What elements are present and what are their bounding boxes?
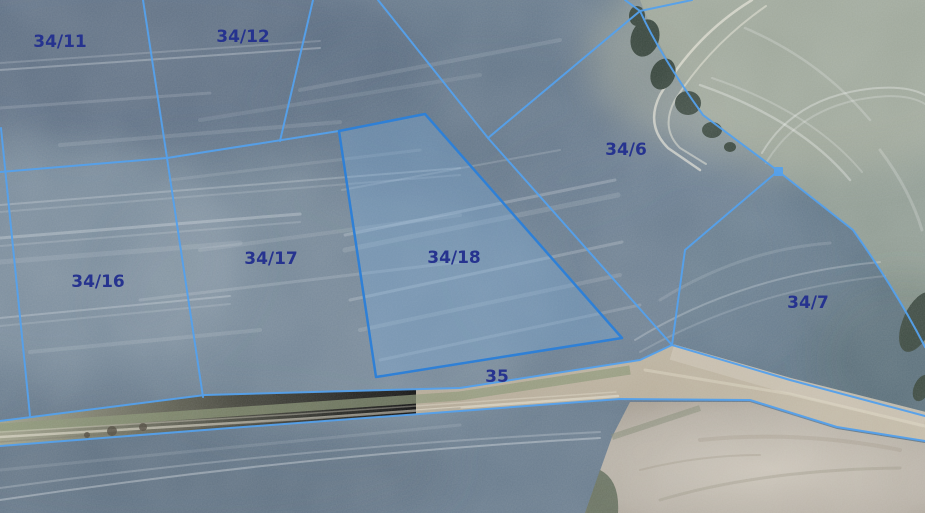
boundary-vertex-marker [775, 168, 782, 175]
parcel-label-34-18: 34/18 [427, 248, 481, 268]
parcel-label-34-12: 34/12 [216, 27, 270, 47]
parcel-label-35: 35 [485, 367, 509, 387]
aerial-map-canvas: 34/11 34/12 34/6 34/16 34/17 34/18 34/7 … [0, 0, 925, 513]
parcel-label-34-7: 34/7 [787, 293, 829, 313]
parcel-label-34-11: 34/11 [33, 32, 87, 52]
parcel-label-34-16: 34/16 [71, 272, 125, 292]
parcel-label-34-6: 34/6 [605, 140, 647, 160]
parcel-label-34-17: 34/17 [244, 249, 298, 269]
map-viewport[interactable]: 34/11 34/12 34/6 34/16 34/17 34/18 34/7 … [0, 0, 925, 513]
